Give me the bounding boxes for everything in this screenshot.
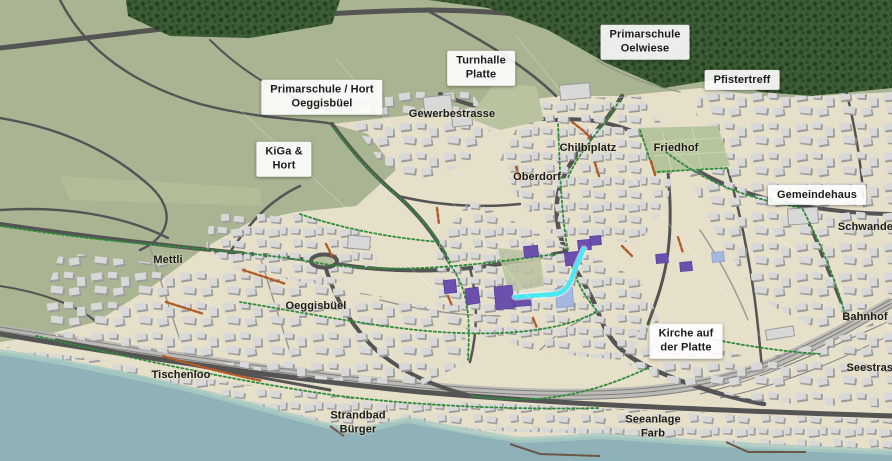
map-3d-view xyxy=(0,0,892,461)
map-canvas[interactable]: Primarschule OelwieseTurnhalle PlattePfi… xyxy=(0,0,892,461)
